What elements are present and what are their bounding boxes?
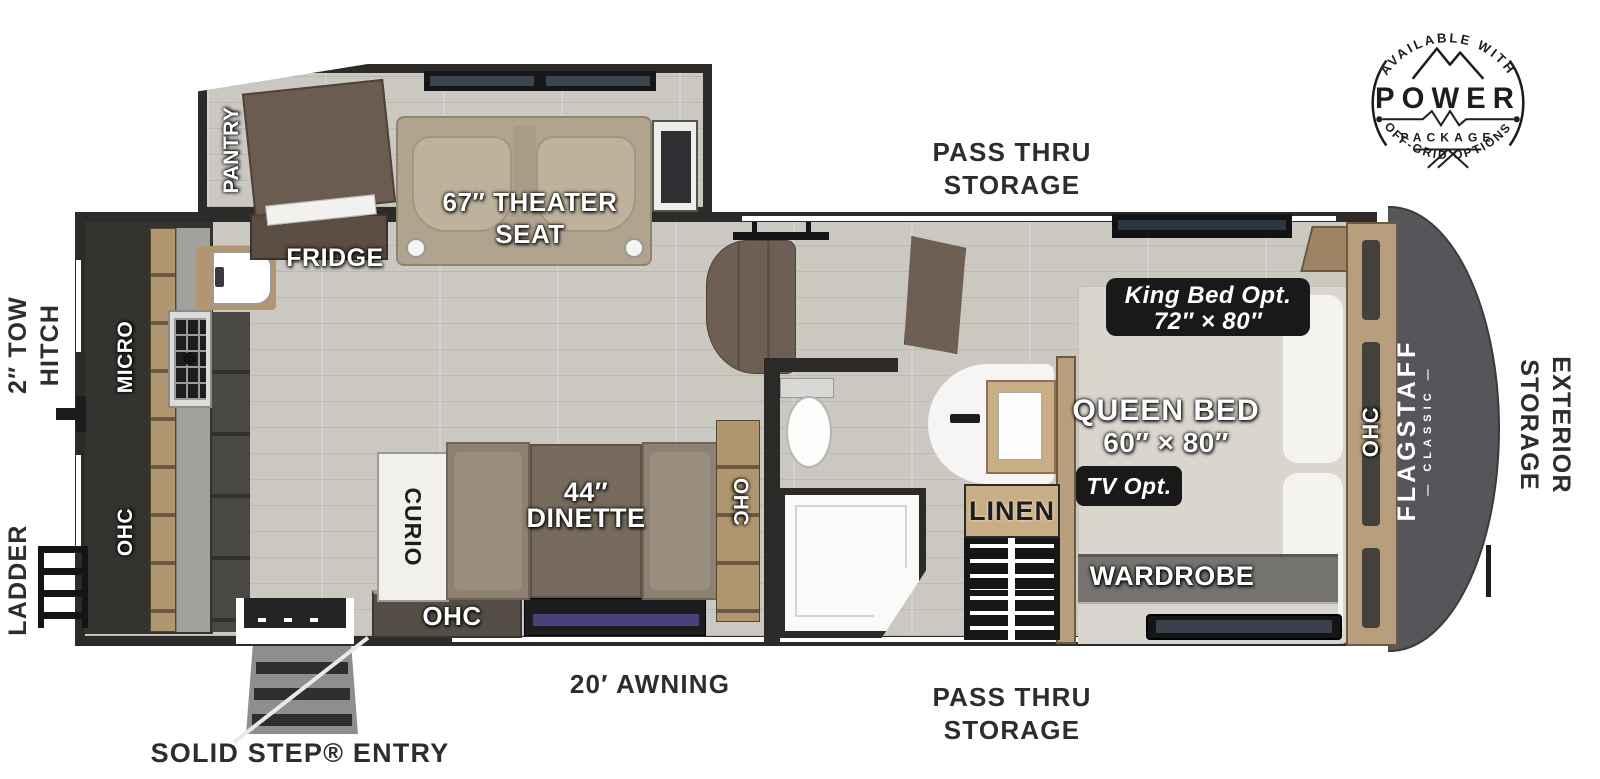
tow-hitch-plate [76,396,86,432]
shelf-post [1008,538,1015,640]
solid-step-entry-label: SOLID STEP® ENTRY [140,736,460,771]
exterior-storage-line2: STORAGE [1513,315,1545,535]
badge-top-arc-text: AVAILABLE WITH [1377,30,1519,78]
theater-seat-label-line1: 67″ THEATER [420,188,640,217]
pass-thru-bottom-line2: STORAGE [892,714,1132,747]
linen-closet-shelves [964,538,1060,640]
badge-subtitle-text: PACKAGE [1400,130,1495,144]
shower-pan-line [795,505,907,617]
flagstaff-classic-logo: FLAGSTAFF — CLASSIC — [1394,310,1454,550]
front-window-slot [1362,240,1380,320]
tow-hitch-label: 2″ TOW HITCH [2,260,58,430]
awning-label: 20′ AWNING [530,668,770,701]
pantry-label: PANTRY [220,85,246,215]
king-bed-option-line1: King Bed Opt. [1106,283,1310,310]
seat-end-table [652,120,698,212]
cap-door-handle [1486,545,1491,597]
slider-hanger [752,222,757,234]
tow-hitch-line2: HITCH [34,260,66,430]
bed-ohc-label: OHC [1359,377,1385,487]
wardrobe-label: WARDROBE [1052,561,1292,591]
left-wall-window-strip-2 [76,455,81,547]
rear-ladder [38,546,88,628]
tv-screen [533,614,699,626]
pass-thru-bottom-line1: PASS THRU [892,681,1132,714]
dinette-ohc-label: OHC [726,447,752,557]
badge-title-text: POWER [1375,82,1521,115]
wall-tv-unit [524,598,706,636]
vanity-mirror [998,392,1042,460]
king-bed-option-badge: King Bed Opt. 72″ × 80″ [1106,278,1310,336]
kitchen-ohc-label: OHC [114,477,140,587]
cooktop-stove [168,310,212,408]
stove-knob [183,352,196,365]
end-table-top [661,131,691,203]
bedroom-tv [1146,614,1342,640]
queen-bed-label-line1: QUEEN BED [1046,394,1286,428]
passthru-door-strip-top-left [742,216,1132,221]
badge-divider-dot [1376,116,1382,122]
exterior-storage-label: EXTERIOR STORAGE [1519,315,1577,535]
sliding-curtain-door [706,240,796,374]
ladder-label: LADDER [2,510,30,650]
micro-label: MICRO [114,302,140,412]
mountains-icon [1413,48,1484,78]
exterior-storage-line1: EXTERIOR [1545,315,1577,535]
kitchen-cabinet-doors [150,228,176,632]
pass-thru-storage-top-label: PASS THRU STORAGE [892,136,1132,203]
floorplan-canvas: MICRO OHC FRIDGE PANTRY 67″ THEATER SEAT… [0,0,1600,779]
flagstaff-wordmark: FLAGSTAFF [1394,310,1422,550]
classic-wordmark: — CLASSIC — [1422,310,1434,550]
kitchen-appliance-column [212,312,250,632]
sink-faucet [215,267,224,287]
bottom-ohc-label: OHC [402,602,502,631]
badge-divider-dot [1514,116,1520,122]
seat-cushion-left [412,136,512,232]
toilet-bowl [786,396,832,468]
fridge-label: FRIDGE [270,244,400,272]
king-bed-option-line2: 72″ × 80″ [1106,309,1310,336]
window-pane [546,76,650,86]
tv-option-label: TV Opt. [1076,474,1182,500]
window-pane [1118,220,1286,230]
power-package-badge: AVAILABLE WITH OFF-GRID OPTIONS POWER PA… [1352,6,1544,190]
curio-label: CURIO [400,462,426,592]
bedroom-door-open [904,236,966,354]
seat-cushion-right [536,136,636,232]
theater-seat-label-line2: SEAT [420,220,640,249]
pass-thru-top-line2: STORAGE [892,169,1132,202]
queen-bed-label-line2: 60″ × 80″ [1066,427,1266,458]
tow-hitch-line1: 2″ TOW [2,260,34,430]
front-window-slot [1362,548,1380,628]
entry-door-panel [244,598,346,628]
bath-wall-left [764,358,780,644]
bath-wall-top [764,358,898,372]
slide-window [424,71,656,91]
slider-track [733,232,829,240]
pass-thru-top-line1: PASS THRU [892,136,1132,169]
left-wall-window-strip-1 [76,260,81,352]
bedroom-window [1112,214,1292,238]
slider-hanger [806,222,811,234]
window-pane [430,76,534,86]
svg-text:AVAILABLE WITH: AVAILABLE WITH [1377,30,1519,78]
bedroom-tv-screen [1156,620,1332,633]
pass-thru-storage-bottom-label: PASS THRU STORAGE [892,681,1132,748]
dinette-label-line2: DINETTE [496,503,676,533]
tv-option-badge: TV Opt. [1076,466,1182,506]
linen-label: LINEN [944,496,1080,527]
vanity-faucet [950,414,980,423]
toilet-tank [780,378,834,398]
